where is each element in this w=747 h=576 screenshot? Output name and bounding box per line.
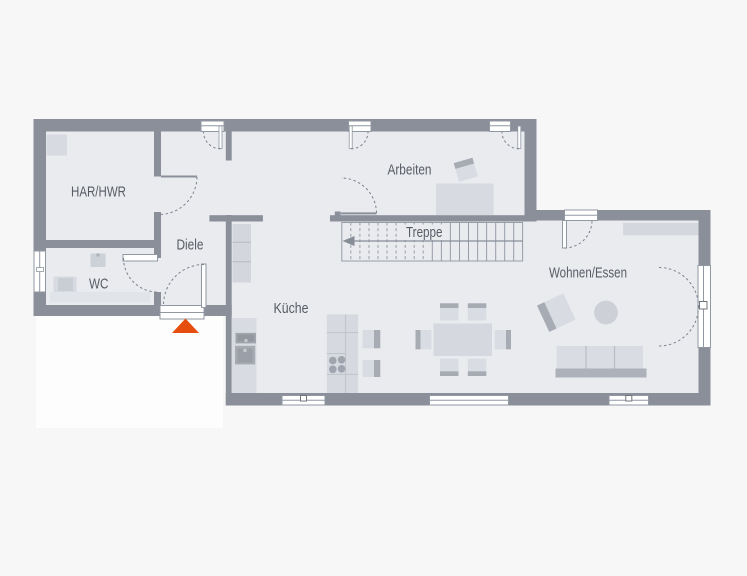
svg-text:Treppe: Treppe <box>406 224 443 241</box>
svg-text:Küche: Küche <box>274 300 309 317</box>
svg-text:WC: WC <box>89 276 109 293</box>
svg-text:Arbeiten: Arbeiten <box>388 162 432 179</box>
svg-text:Diele: Diele <box>177 237 204 254</box>
svg-text:Wohnen/Essen: Wohnen/Essen <box>549 265 627 282</box>
svg-text:HAR/HWR: HAR/HWR <box>71 184 126 201</box>
